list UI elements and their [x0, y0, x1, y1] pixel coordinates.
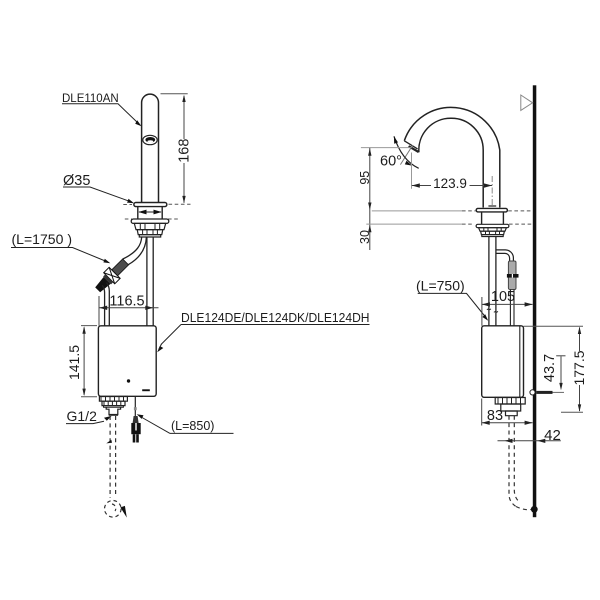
svg-text:177.5: 177.5	[571, 350, 587, 385]
svg-text:DLE110AN: DLE110AN	[62, 93, 119, 105]
svg-text:DLE124DE/DLE124DK/DLE124DH: DLE124DE/DLE124DK/DLE124DH	[181, 310, 370, 325]
svg-text:G1/2: G1/2	[67, 408, 98, 424]
svg-text:60°: 60°	[380, 154, 402, 170]
svg-text:(L=850): (L=850)	[171, 419, 214, 433]
svg-text:95: 95	[358, 171, 372, 185]
svg-text:(L=1750 ): (L=1750 )	[12, 232, 73, 247]
svg-text:168: 168	[177, 139, 193, 163]
svg-text:43.7: 43.7	[542, 354, 558, 382]
svg-text:30: 30	[358, 230, 372, 244]
svg-text:42: 42	[544, 427, 561, 444]
svg-text:123.9: 123.9	[433, 176, 467, 191]
svg-text:(L=750): (L=750)	[416, 277, 465, 293]
svg-text:105: 105	[491, 289, 515, 305]
svg-text:83: 83	[487, 408, 503, 424]
svg-text:116.5: 116.5	[109, 293, 144, 309]
svg-text:141.5: 141.5	[66, 345, 82, 380]
